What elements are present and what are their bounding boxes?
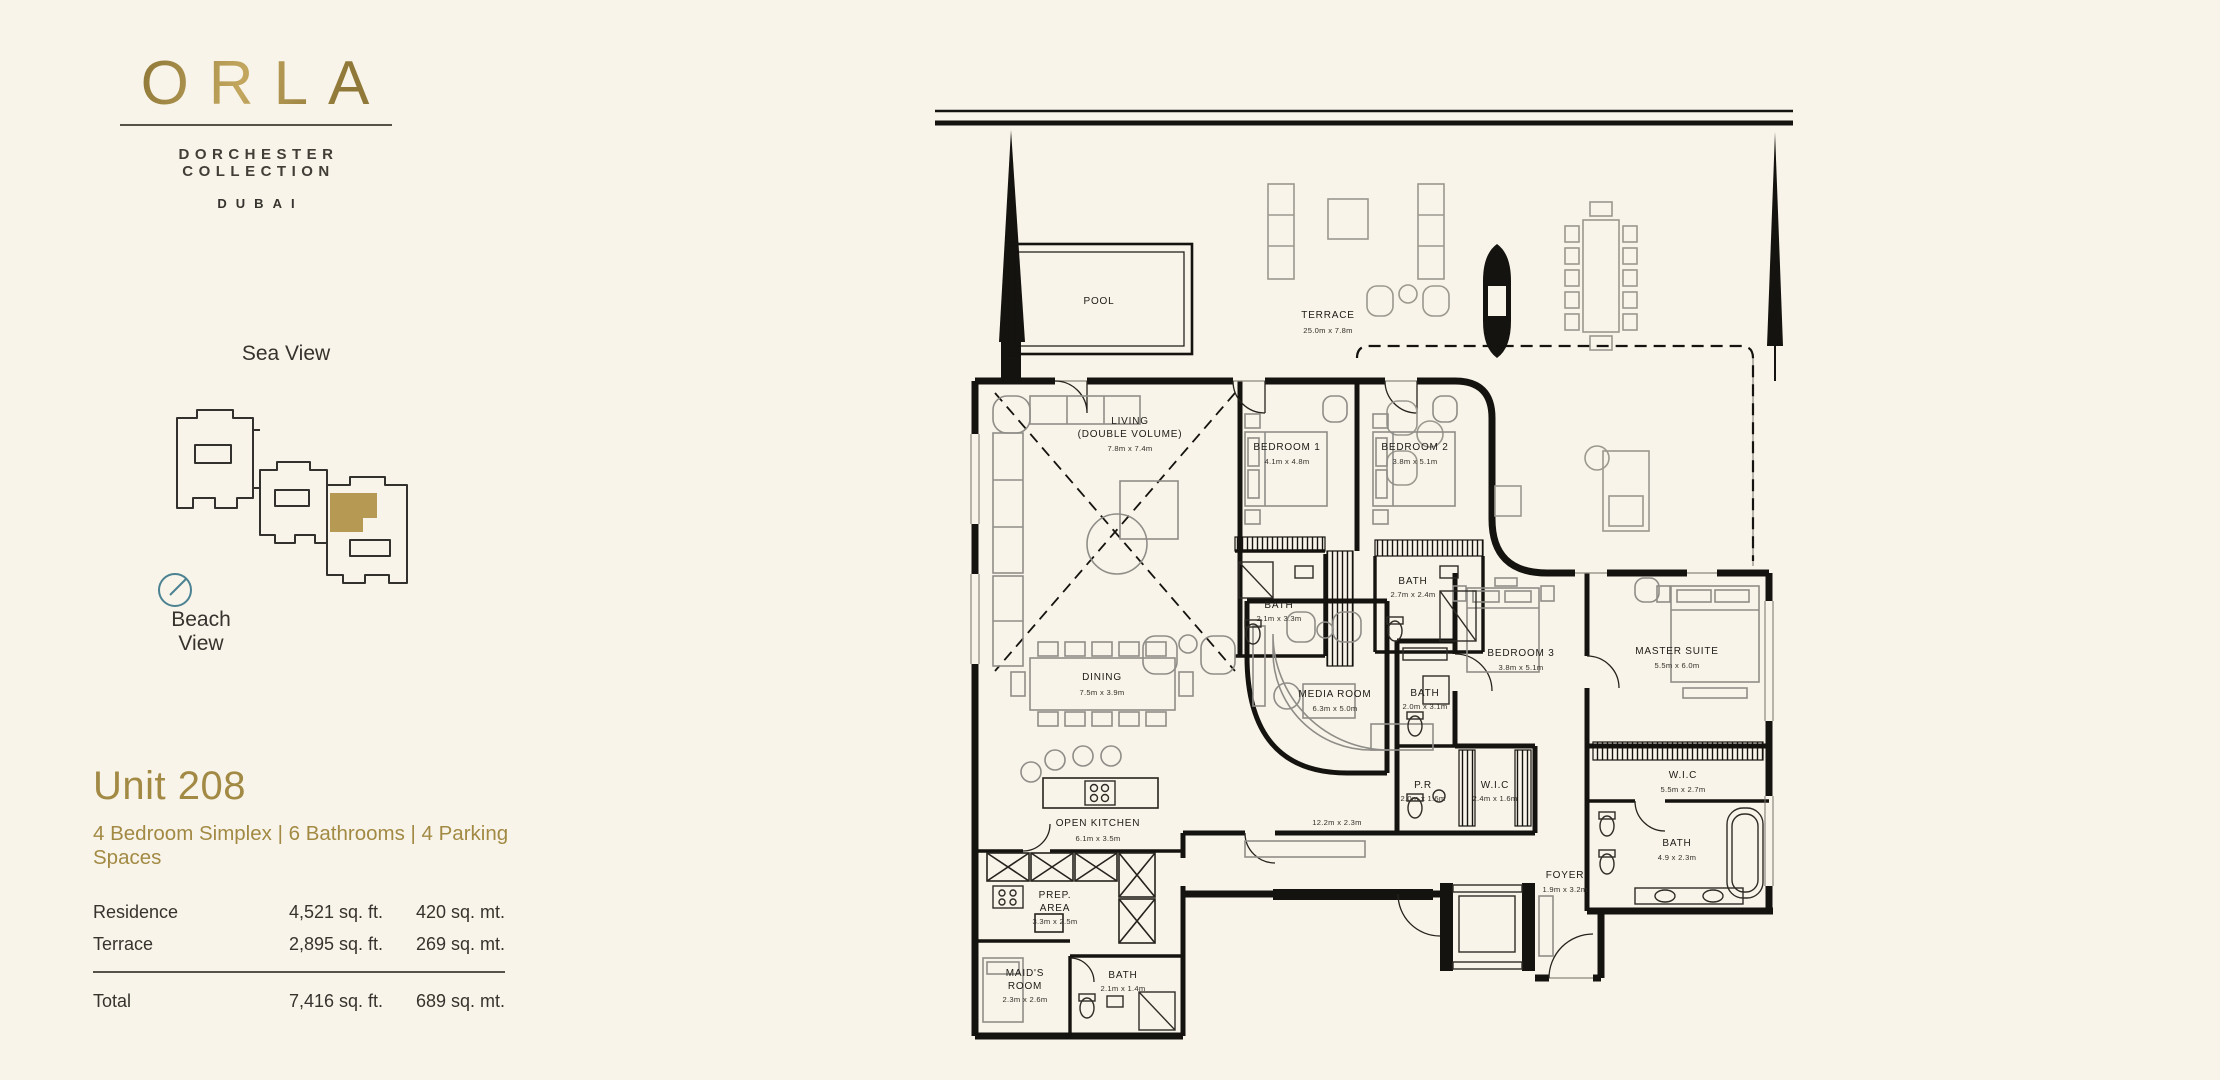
bath2-label: BATH: [1398, 576, 1427, 587]
maid-bath-dims: 2.1m x 1.4m: [1100, 984, 1145, 993]
table-row-residence: Residence 4,521 sq. ft. 420 sq. mt.: [93, 902, 505, 923]
corridor-dims: 12.2m x 2.3m: [1312, 818, 1362, 827]
brand-collection: DORCHESTER COLLECTION: [118, 146, 394, 180]
brand-block: ORLA DORCHESTER COLLECTION DUBAI: [118, 50, 394, 211]
master-suite-furniture: [1635, 578, 1759, 698]
keyplan-unit-highlight: [330, 493, 377, 532]
bath1-dims: 2.1m x 3.3m: [1256, 614, 1301, 623]
compass-icon: [159, 574, 191, 606]
prep-area-label: PREP.: [1039, 890, 1072, 901]
table-row-terrace: Terrace 2,895 sq. ft. 269 sq. mt.: [93, 934, 505, 955]
master-suite-dims: 5.5m x 6.0m: [1654, 661, 1699, 670]
unit-info: Unit 208 4 Bedroom Simplex | 6 Bathrooms…: [93, 764, 533, 1023]
beach-view-label: Beach View: [146, 608, 256, 656]
brochure-page: ORLA DORCHESTER COLLECTION DUBAI Sea Vie…: [0, 0, 2220, 1080]
corridor-console: [1245, 841, 1365, 857]
open-terrace-furniture: [1387, 401, 1649, 531]
terrace-label: TERRACE: [1301, 310, 1354, 321]
bath1-label: BATH: [1264, 600, 1293, 611]
bedroom2-label: BEDROOM 2: [1381, 442, 1448, 453]
dining-dims: 7.5m x 3.9m: [1079, 688, 1124, 697]
prep-area-dims: 3.3m x 2.5m: [1032, 917, 1077, 926]
entrance-wall-band: [1273, 889, 1433, 900]
maid-room-dims: 2.3m x 2.6m: [1002, 995, 1047, 1004]
maid-bath-fixtures: [1079, 992, 1175, 1030]
open-terrace-dashed-outline: [1357, 346, 1753, 561]
unit-title: Unit 208: [93, 764, 533, 809]
maid-room-label-2: ROOM: [1008, 981, 1042, 992]
living-dims: 7.8m x 7.4m: [1107, 444, 1152, 453]
elevator-shaft: [1440, 883, 1553, 971]
bedroom3-label: BEDROOM 3: [1487, 648, 1554, 659]
open-kitchen-dims: 6.1m x 3.5m: [1075, 834, 1120, 843]
master-bath-label: BATH: [1662, 838, 1691, 849]
dining-label: DINING: [1082, 672, 1122, 683]
media-room-dims: 6.3m x 5.0m: [1312, 704, 1357, 713]
floor-plan: POOL TERRACE 25.0m x 7.8m LIVING (DOUBLE…: [935, 96, 1805, 1054]
living-label-2: (DOUBLE VOLUME): [1078, 429, 1183, 440]
brand-city: DUBAI: [118, 196, 394, 211]
total-sqmt: 689 sq. mt.: [383, 991, 505, 1012]
powder-room-label: P.R: [1414, 780, 1432, 791]
total-sqft: 7,416 sq. ft.: [271, 991, 383, 1012]
window-glazing: [971, 358, 1773, 978]
keyplan-map: [145, 390, 425, 625]
bedroom1-label: BEDROOM 1: [1253, 442, 1320, 453]
dining-furniture: [1011, 642, 1193, 726]
wic1-dims: 2.4m x 1.6m: [1472, 794, 1517, 803]
terrace-sqft: 2,895 sq. ft.: [271, 934, 383, 955]
kitchen-furniture: [1021, 746, 1158, 808]
structural-columns: [999, 130, 1783, 382]
prep-area-label-2: AREA: [1040, 903, 1070, 914]
bath2-dims: 2.7m x 2.4m: [1390, 590, 1435, 599]
maid-room-label: MAID'S: [1006, 968, 1044, 979]
table-divider: [93, 971, 505, 973]
terrace-sqmt: 269 sq. mt.: [383, 934, 505, 955]
master-bath-dims: 4.9 x 2.3m: [1658, 853, 1696, 862]
terrace-label: Terrace: [93, 934, 271, 955]
powder-room-dims: 2.0m x 1.6m: [1400, 794, 1445, 803]
plot-boundary: [935, 111, 1793, 123]
terrace-dims: 25.0m x 7.8m: [1303, 326, 1353, 335]
residence-sqft: 4,521 sq. ft.: [271, 902, 383, 923]
media-room-label: MEDIA ROOM: [1298, 689, 1371, 700]
open-kitchen-label: OPEN KITCHEN: [1056, 818, 1141, 829]
bath3-dims: 2.0m x 3.1m: [1402, 702, 1447, 711]
maid-bath-label: BATH: [1108, 970, 1137, 981]
pool-label: POOL: [1084, 296, 1115, 307]
bedroom3-dims: 3.8m x 5.1m: [1498, 663, 1543, 672]
brand-logo: ORLA: [118, 50, 394, 118]
area-table: Residence 4,521 sq. ft. 420 sq. mt. Terr…: [93, 902, 505, 1012]
bedroom1-dims: 4.1m x 4.8m: [1264, 457, 1309, 466]
foyer-dims: 1.9m x 3.2m: [1542, 885, 1587, 894]
wic2-dims: 5.5m x 2.7m: [1660, 785, 1705, 794]
walls: [975, 381, 1773, 1036]
bedroom2-dims: 3.8m x 5.1m: [1392, 457, 1437, 466]
residence-sqmt: 420 sq. mt.: [383, 902, 505, 923]
wic2-label: W.I.C: [1669, 770, 1697, 781]
bath3-label: BATH: [1410, 688, 1439, 699]
table-row-total: Total 7,416 sq. ft. 689 sq. mt.: [93, 991, 505, 1012]
foyer-label: FOYER: [1546, 870, 1584, 881]
residence-label: Residence: [93, 902, 271, 923]
master-suite-label: MASTER SUITE: [1635, 646, 1719, 657]
sea-view-label: Sea View: [226, 342, 346, 366]
living-label: LIVING: [1111, 416, 1149, 427]
wic1-label: W.I.C: [1481, 780, 1509, 791]
unit-subtitle: 4 Bedroom Simplex | 6 Bathrooms | 4 Park…: [93, 822, 533, 870]
total-label: Total: [93, 991, 271, 1012]
brand-divider: [120, 124, 392, 126]
